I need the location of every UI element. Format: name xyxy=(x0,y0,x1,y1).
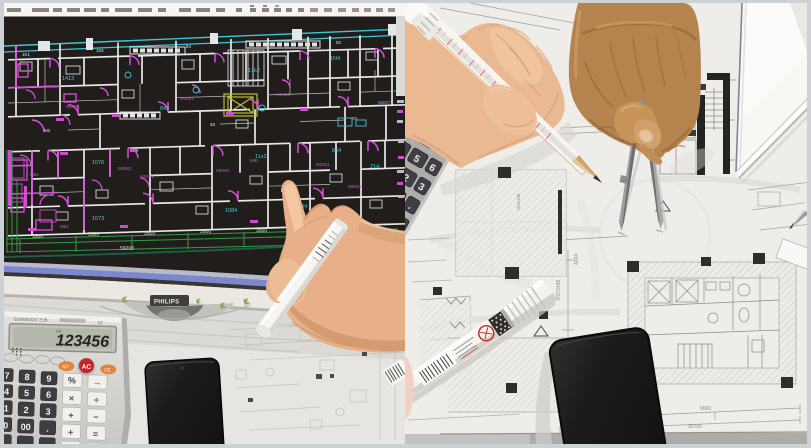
svg-text:M0921: M0921 xyxy=(276,92,290,97)
svg-text:→: → xyxy=(92,377,101,387)
svg-text:GT: GT xyxy=(62,364,69,369)
svg-text:7A: 7A xyxy=(352,116,358,121)
svg-text:3500: 3500 xyxy=(88,232,99,238)
svg-text:9000: 9000 xyxy=(700,406,711,412)
svg-text:3: 3 xyxy=(45,407,50,417)
svg-text:00: 00 xyxy=(21,422,31,432)
svg-text:M0921: M0921 xyxy=(316,162,330,167)
svg-text:12: 12 xyxy=(98,320,104,325)
svg-text:M2: M2 xyxy=(44,128,51,133)
svg-text:+: + xyxy=(68,427,74,437)
svg-text:4: 4 xyxy=(4,386,9,396)
svg-text:+: + xyxy=(68,410,74,420)
svg-text:7: 7 xyxy=(4,370,9,380)
svg-text:%: % xyxy=(68,375,76,385)
svg-text:M0921: M0921 xyxy=(118,166,132,171)
svg-text:M0921: M0921 xyxy=(216,168,230,173)
svg-text:3500: 3500 xyxy=(144,231,155,237)
svg-text:92: 92 xyxy=(336,40,342,45)
svg-text:M61: M61 xyxy=(250,158,259,163)
svg-text:843: 843 xyxy=(160,106,169,112)
svg-text:84: 84 xyxy=(186,44,192,49)
svg-text:8: 8 xyxy=(24,372,29,382)
svg-text:M0921: M0921 xyxy=(348,184,362,189)
svg-text:3500: 3500 xyxy=(256,228,267,234)
svg-text:4024: 4024 xyxy=(574,254,580,265)
svg-text:103: 103 xyxy=(96,48,104,53)
svg-text:1R4: 1R4 xyxy=(262,42,271,47)
svg-text:×: × xyxy=(69,393,75,403)
svg-text:214: 214 xyxy=(370,164,379,170)
svg-text:3500: 3500 xyxy=(32,234,43,240)
svg-text:M61: M61 xyxy=(30,172,39,177)
svg-text:2: 2 xyxy=(24,405,29,415)
svg-text:M61: M61 xyxy=(60,224,69,229)
svg-text:56007: 56007 xyxy=(378,100,391,105)
svg-text:864: 864 xyxy=(332,148,341,154)
svg-text:M0921: M0921 xyxy=(66,104,80,109)
svg-text:3500: 3500 xyxy=(200,229,211,235)
svg-text:M0921: M0921 xyxy=(140,174,154,179)
svg-text:1N4: 1N4 xyxy=(330,56,340,62)
svg-text:1084: 1084 xyxy=(225,208,237,214)
svg-text:5: 5 xyxy=(24,388,29,398)
svg-text:1K1: 1K1 xyxy=(22,52,31,57)
svg-text:17k2: 17k2 xyxy=(248,68,260,74)
svg-text:9: 9 xyxy=(46,374,51,384)
svg-text:123456: 123456 xyxy=(55,332,109,350)
svg-text:R072438: R072438 xyxy=(556,279,562,300)
svg-text:−: − xyxy=(93,412,99,422)
svg-text:6: 6 xyxy=(46,390,51,400)
svg-text:=: = xyxy=(93,429,99,439)
svg-text:1073: 1073 xyxy=(92,216,104,222)
svg-text:1: 1 xyxy=(4,403,9,413)
svg-text:48: 48 xyxy=(210,122,216,127)
svg-text:PHILIPS: PHILIPS xyxy=(154,300,179,306)
svg-text:M0921: M0921 xyxy=(180,96,194,101)
svg-text:CE: CE xyxy=(104,367,110,372)
svg-text:DN2438: DN2438 xyxy=(516,193,521,210)
svg-text:AC: AC xyxy=(82,364,92,371)
svg-text:÷: ÷ xyxy=(94,395,99,405)
svg-text:1076: 1076 xyxy=(92,160,104,166)
svg-text:1413: 1413 xyxy=(62,76,74,82)
svg-text:30700: 30700 xyxy=(688,424,702,430)
svg-text:.: . xyxy=(46,424,49,434)
